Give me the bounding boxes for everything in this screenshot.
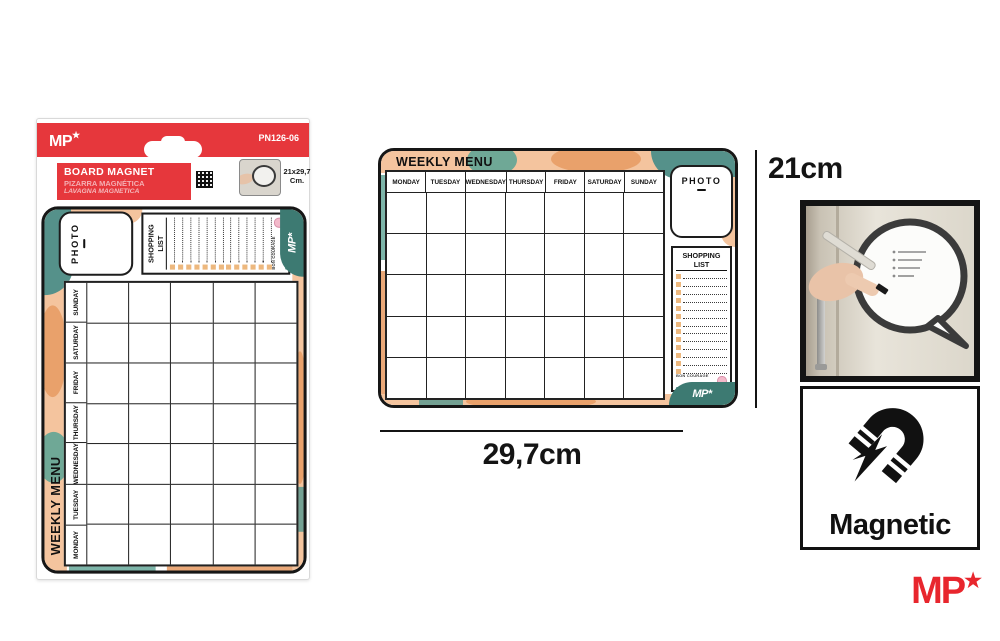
dotted-line: [211, 218, 215, 263]
dotted-line: [187, 218, 191, 263]
menu-cell: [544, 358, 584, 398]
grid-row: [387, 274, 663, 315]
grid-row: [212, 283, 254, 565]
checkbox-square: [676, 329, 681, 334]
day-header-cell: SATURDAY: [66, 323, 86, 363]
menu-cell: [623, 193, 663, 233]
brand-star-icon: ★: [964, 570, 982, 592]
dotted-line: [683, 338, 727, 342]
checkbox-square: [676, 298, 681, 303]
menu-cell: [171, 323, 212, 363]
shopping-list-row: [258, 218, 264, 270]
width-dimension-line: [380, 430, 683, 432]
checkbox-square: [676, 322, 681, 327]
shopping-list-row: [242, 218, 248, 270]
shopping-list-row: [234, 218, 240, 270]
shopping-list-row: [250, 218, 256, 270]
menu-cell: [171, 283, 212, 323]
menu-cell: [213, 485, 254, 525]
dotted-line: [683, 323, 727, 327]
menu-cell: [255, 485, 296, 525]
day-header-cell: FRIDAY: [545, 172, 584, 192]
menu-cell: [387, 275, 426, 315]
shopping-list-row: [676, 297, 727, 303]
menu-cell: [505, 193, 545, 233]
checkbox-square: [676, 314, 681, 319]
shopping-list-row: [169, 218, 175, 270]
product-listing-image: MP★ PN126-06 BOARD MAGNET PIZARRA MAGNÉT…: [0, 0, 1000, 641]
fridge-usage-photo: [800, 200, 980, 382]
day-header-cell: THURSDAY: [66, 403, 86, 443]
menu-cell: [213, 323, 254, 363]
menu-cell: [387, 193, 426, 233]
day-header-cell: TUESDAY: [425, 172, 464, 192]
shopping-list-row: [676, 329, 727, 335]
package-size-text: 21x29,7 Cm.: [283, 167, 311, 186]
menu-cell: [465, 317, 505, 357]
menu-cell: [213, 404, 254, 444]
menu-cell: [426, 358, 466, 398]
menu-cell: [129, 364, 170, 404]
weekly-menu-board: WEEKLY MENUMONDAYTUESDAYWEDNESDAYTHURSDA…: [41, 206, 306, 573]
menu-cell: [623, 358, 663, 398]
grid-row: [387, 357, 663, 398]
menu-cell: [426, 317, 466, 357]
grid-header-row: MONDAYTUESDAYWEDNESDAYTHURSDAYFRIDAYSATU…: [66, 283, 86, 565]
magnet-icon: [830, 391, 950, 509]
menu-cell: [129, 444, 170, 484]
menu-cell: [465, 358, 505, 398]
day-header-cell: WEDNESDAY: [465, 172, 506, 192]
magnetic-badge: Magnetic: [800, 386, 980, 550]
checkbox-square: [210, 265, 215, 270]
checkbox-square: [676, 290, 681, 295]
shopping-list-row: [185, 218, 191, 270]
day-header-cell: THURSDAY: [506, 172, 545, 192]
grid-row: [387, 316, 663, 357]
menu-cell: [129, 525, 170, 564]
menu-cell: [171, 485, 212, 525]
shopping-list-box: SHOPPING LISTBON COURAGEBON APPETIT: [671, 246, 732, 392]
shopping-list-row: [676, 273, 727, 279]
checkbox-square: [676, 337, 681, 342]
checkbox-square: [251, 265, 256, 270]
dotted-line: [683, 354, 727, 358]
board-flat-view: WEEKLY MENUMONDAYTUESDAYWEDNESDAYTHURSDA…: [378, 148, 738, 408]
menu-cell: [544, 234, 584, 274]
dotted-line: [219, 218, 223, 263]
brand-text: MP: [49, 133, 72, 150]
day-header-cell: SUNDAY: [66, 283, 86, 323]
checkbox-square: [676, 306, 681, 311]
checkbox-square: [676, 282, 681, 287]
checkbox-square: [243, 265, 248, 270]
shopping-list-row: [210, 218, 216, 270]
checkbox-square: [676, 353, 681, 358]
menu-cell: [87, 485, 128, 525]
shopping-list-row: [676, 313, 727, 319]
checkbox-square: [178, 265, 183, 270]
brand-corner: MP*: [669, 382, 735, 405]
dotted-line: [236, 218, 240, 263]
day-header-cell: WEDNESDAY: [66, 443, 86, 485]
dotted-line: [683, 330, 727, 334]
shopping-list-rows: [676, 273, 727, 374]
dotted-line: [683, 307, 727, 311]
height-dimension-label: 21cm: [768, 152, 843, 186]
menu-cell: [387, 358, 426, 398]
grid-row: [128, 283, 170, 565]
day-header-cell: SATURDAY: [584, 172, 623, 192]
dotted-line: [252, 218, 256, 263]
package-brand-logo: MP★: [49, 130, 80, 151]
menu-cell: [255, 444, 296, 484]
menu-cell: [544, 317, 584, 357]
checkbox-square: [259, 265, 264, 270]
menu-cell: [584, 234, 624, 274]
shopping-list-row: [676, 361, 727, 367]
photo-label: PHOTO: [672, 176, 731, 186]
brand-logo: MP*: [692, 388, 711, 400]
brand-logo: MP*: [286, 233, 298, 253]
menu-cell: [426, 193, 466, 233]
package-header-bar: MP★ PN126-06: [37, 123, 309, 157]
photo-box: PHOTO: [59, 212, 133, 276]
brand-logo: MP★: [911, 568, 982, 613]
menu-cell: [213, 283, 254, 323]
size-unit: Cm.: [283, 176, 311, 185]
menu-cell: [623, 275, 663, 315]
grid-row: [387, 233, 663, 274]
shopping-list-row: [676, 289, 727, 295]
menu-cell: [544, 275, 584, 315]
menu-cell: [87, 283, 128, 323]
dotted-line: [244, 218, 248, 263]
menu-cell: [87, 525, 128, 564]
day-header-cell: SUNDAY: [624, 172, 663, 192]
checkbox-square: [186, 265, 191, 270]
menu-cell: [87, 364, 128, 404]
menu-cell: [584, 275, 624, 315]
brand-corner: MP*: [280, 209, 303, 276]
product-package: MP★ PN126-06 BOARD MAGNET PIZARRA MAGNÉT…: [36, 118, 310, 580]
menu-cell: [171, 444, 212, 484]
dotted-line: [683, 346, 727, 350]
menu-cell: [465, 275, 505, 315]
height-dimension-line: [755, 150, 757, 408]
shopping-list-rows: [169, 218, 272, 270]
checkbox-square: [235, 265, 240, 270]
menu-cell: [129, 323, 170, 363]
menu-cell: [255, 283, 296, 323]
mini-speech-bubble: [252, 165, 276, 187]
menu-cell: [129, 404, 170, 444]
photo-underline: [697, 189, 706, 191]
menu-cell: [584, 358, 624, 398]
shopping-list-row: [676, 305, 727, 311]
packaged-board-rotated: WEEKLY MENUMONDAYTUESDAYWEDNESDAYTHURSDA…: [43, 205, 305, 575]
dotted-line: [203, 218, 207, 263]
dotted-line: [195, 218, 199, 263]
magnetic-label: Magnetic: [803, 509, 977, 542]
day-header-cell: TUESDAY: [66, 485, 86, 525]
menu-cell: [255, 323, 296, 363]
shopping-list-title: SHOPPING LIST: [146, 218, 166, 270]
menu-cell: [544, 193, 584, 233]
menu-cell: [255, 525, 296, 564]
grid-row: [387, 192, 663, 233]
dotted-line: [260, 218, 264, 263]
menu-cell: [213, 364, 254, 404]
dotted-line: [179, 218, 183, 263]
photo-label: PHOTO: [70, 214, 80, 274]
menu-cell: [213, 444, 254, 484]
weekly-menu-board: WEEKLY MENUMONDAYTUESDAYWEDNESDAYTHURSDA…: [378, 148, 738, 408]
product-name-it: LAVAGNA MAGNETICA: [64, 188, 191, 195]
width-dimension-label: 29,7cm: [448, 438, 616, 472]
day-header-cell: MONDAY: [66, 525, 86, 564]
brand-text: MP: [911, 570, 964, 612]
dotted-line: [683, 291, 727, 295]
dotted-line: [683, 362, 727, 366]
shopping-list-row: [201, 218, 207, 270]
menu-cell: [584, 317, 624, 357]
day-header-cell: FRIDAY: [66, 363, 86, 403]
menu-cell: [87, 444, 128, 484]
shopping-list-row: [177, 218, 183, 270]
menu-cell: [171, 525, 212, 564]
photo-underline: [83, 239, 85, 248]
menu-cell: [505, 317, 545, 357]
grid-row: [170, 283, 212, 565]
checkbox-square: [676, 274, 681, 279]
dotted-line: [683, 315, 727, 319]
menu-cell: [129, 283, 170, 323]
shopping-list-row: [226, 218, 232, 270]
menu-cell: [505, 358, 545, 398]
menu-cell: [129, 485, 170, 525]
shopping-list-row: [676, 353, 727, 359]
menu-cell: [465, 193, 505, 233]
menu-cell: [213, 525, 254, 564]
checkbox-square: [227, 265, 232, 270]
usage-thumbnail: [239, 159, 281, 196]
shopping-list-row: [676, 321, 727, 327]
shopping-list-row: [676, 281, 727, 287]
shopping-list-row: [218, 218, 224, 270]
shopping-list-row: [676, 345, 727, 351]
menu-cell: [255, 364, 296, 404]
menu-grid: MONDAYTUESDAYWEDNESDAYTHURSDAYFRIDAYSATU…: [64, 281, 299, 567]
menu-grid: MONDAYTUESDAYWEDNESDAYTHURSDAYFRIDAYSATU…: [385, 170, 665, 400]
product-name-es: PIZARRA MAGNÉTICA: [64, 179, 191, 188]
brand-star-icon: ★: [72, 130, 80, 140]
dotted-line: [228, 218, 232, 263]
dotted-line: [683, 275, 727, 279]
checkbox-square: [202, 265, 207, 270]
product-code: PN126-06: [258, 133, 299, 143]
menu-cell: [387, 317, 426, 357]
dotted-line: [683, 283, 727, 287]
menu-cell: [623, 234, 663, 274]
checkbox-square: [676, 361, 681, 366]
shopping-list-row: [676, 337, 727, 343]
menu-cell: [387, 234, 426, 274]
menu-cell: [87, 404, 128, 444]
day-header-cell: MONDAY: [387, 172, 425, 192]
grid-row: [254, 283, 296, 565]
product-name-label: BOARD MAGNET PIZARRA MAGNÉTICA LAVAGNA M…: [57, 163, 191, 200]
menu-cell: [255, 404, 296, 444]
checkbox-square: [194, 265, 199, 270]
product-name-en: BOARD MAGNET: [64, 166, 191, 178]
menu-cell: [623, 317, 663, 357]
menu-cell: [426, 234, 466, 274]
qr-code: [196, 171, 213, 188]
checkbox-square: [170, 265, 175, 270]
dotted-line: [171, 218, 175, 263]
shopping-list-row: [193, 218, 199, 270]
grid-row: [86, 283, 128, 565]
menu-cell: [426, 275, 466, 315]
hang-tab: [144, 141, 202, 158]
menu-cell: [171, 364, 212, 404]
shopping-list-box: SHOPPING LISTBON COURAGEBON APPETIT: [141, 213, 290, 275]
board-title: WEEKLY MENU: [49, 457, 63, 556]
menu-cell: [584, 193, 624, 233]
menu-cell: [505, 275, 545, 315]
checkbox-square: [218, 265, 223, 270]
photo-box: PHOTO: [670, 165, 733, 238]
menu-cell: [171, 404, 212, 444]
shopping-list-title: SHOPPING LIST: [676, 251, 727, 271]
menu-cell: [87, 323, 128, 363]
board-title: WEEKLY MENU: [396, 155, 493, 169]
handle-bracket: [815, 364, 827, 370]
menu-cell: [505, 234, 545, 274]
grid-header-row: MONDAYTUESDAYWEDNESDAYTHURSDAYFRIDAYSATU…: [387, 172, 663, 192]
fridge-handle: [817, 294, 825, 368]
dotted-line: [683, 299, 727, 303]
menu-cell: [465, 234, 505, 274]
checkbox-square: [676, 345, 681, 350]
size-value: 21x29,7: [283, 167, 311, 176]
